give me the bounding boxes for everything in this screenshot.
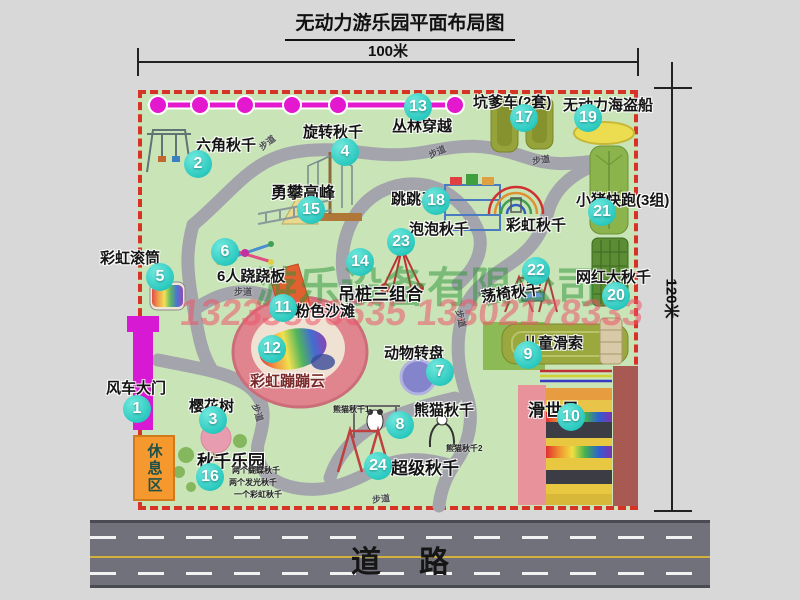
walkway-label: 步道: [371, 491, 390, 506]
walkway-label: 步道: [234, 285, 252, 298]
attraction-badge-9: 9: [514, 341, 542, 369]
attraction-badge-15: 15: [297, 196, 325, 224]
attraction-label-8: 熊猫秋千: [414, 399, 474, 420]
attraction-badge-12: 12: [258, 335, 286, 363]
attraction-badge-2: 2: [184, 150, 212, 178]
attraction-badge-23: 23: [387, 228, 415, 256]
attraction-badge-7: 7: [426, 358, 454, 386]
slide-world-shape: [518, 366, 638, 506]
attraction-badge-13: 13: [404, 93, 432, 121]
attraction-badge-5: 5: [146, 263, 174, 291]
attraction-badge-1: 1: [123, 395, 151, 423]
swing-park-note-3: 一个彩虹秋千: [234, 489, 282, 500]
attraction-badge-20: 20: [602, 282, 630, 310]
swing-park-note-1: 两个蝴蝶秋千: [232, 465, 280, 476]
swing-park-note-2: 两个发光秋千: [229, 477, 277, 488]
attraction-label-14: 吊桩三组合: [338, 280, 423, 305]
panda-swing-2-label: 熊猫秋千2: [446, 443, 482, 454]
panda-swing-1-label: 熊猫秋千1: [333, 404, 369, 415]
attraction-badge-3: 3: [199, 406, 227, 434]
attraction-label-24: 超级秋千: [391, 454, 459, 479]
attraction-badge-18: 18: [422, 187, 450, 215]
attraction-badge-16: 16: [196, 463, 224, 491]
attraction-badge-24: 24: [364, 452, 392, 480]
attraction-label-23: 泡泡秋千: [409, 218, 469, 239]
attraction-label-4: 旋转秋千: [303, 121, 363, 142]
attraction-badge-19: 19: [574, 104, 602, 132]
attraction-label-12: 彩虹蹦蹦云: [250, 370, 325, 391]
playground-layout-map: { "title": "无动力游乐园平面布局图", "dims": { "wid…: [0, 0, 800, 600]
attraction-badge-8: 8: [386, 411, 414, 439]
rainbow-swing-label: 彩虹秋千: [506, 214, 566, 235]
attraction-badge-17: 17: [510, 104, 538, 132]
attraction-badge-14: 14: [346, 248, 374, 276]
attraction-badge-11: 11: [269, 294, 297, 322]
walkway-label: 步道: [531, 152, 551, 167]
attraction-badge-4: 4: [331, 138, 359, 166]
attraction-label-6: 6人跷跷板: [217, 265, 285, 286]
attraction-badge-21: 21: [588, 198, 616, 226]
attraction-badge-22: 22: [522, 257, 550, 285]
attraction-badge-6: 6: [211, 238, 239, 266]
rest-area: 休息区: [133, 435, 175, 501]
attraction-badge-10: 10: [557, 403, 585, 431]
